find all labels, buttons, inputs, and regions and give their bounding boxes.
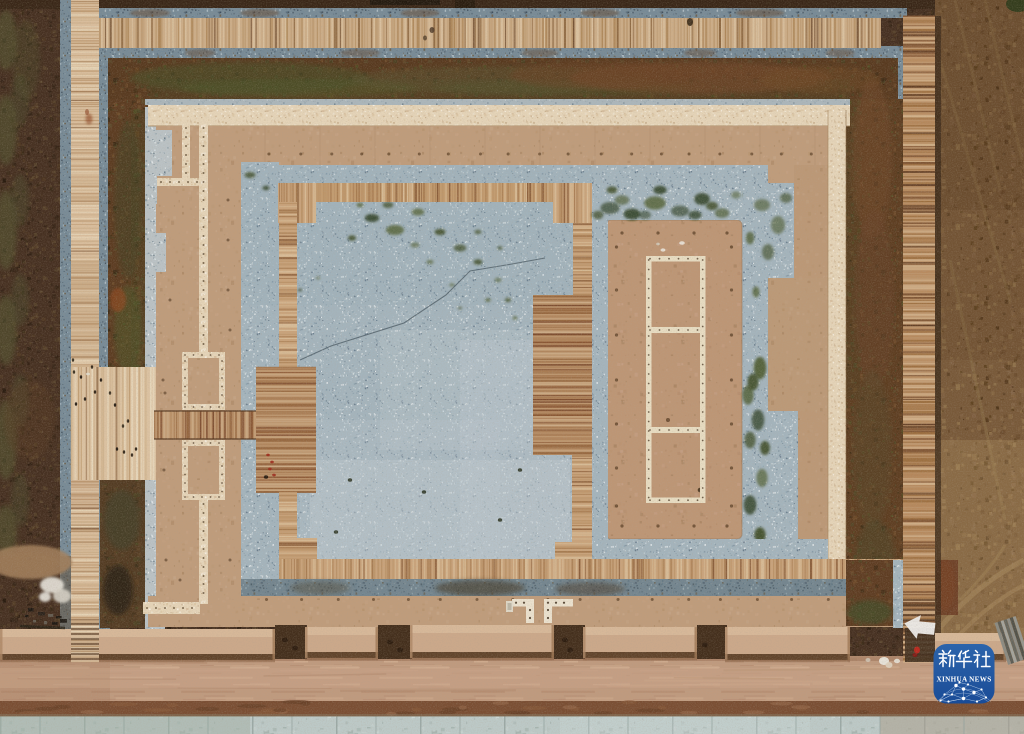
svg-text:XINHUA NEWS: XINHUA NEWS	[936, 676, 991, 684]
